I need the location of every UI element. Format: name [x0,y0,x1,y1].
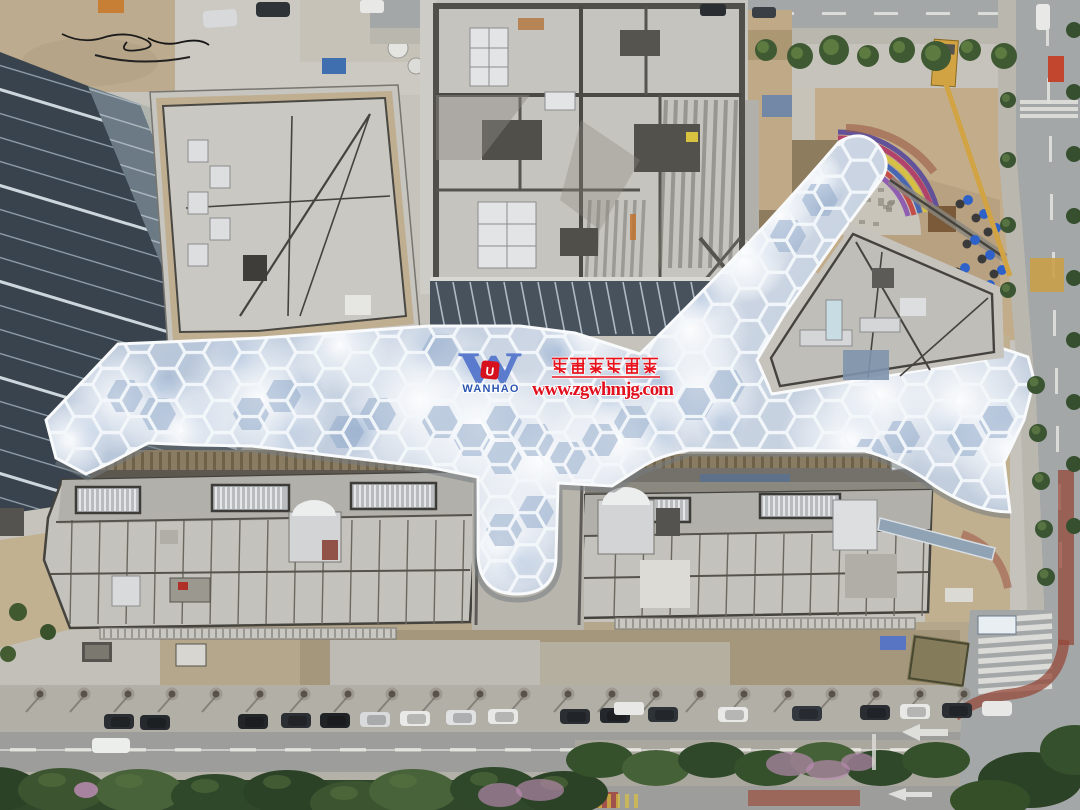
svg-text:WANHAO: WANHAO [462,383,519,395]
svg-text:www.zgwhmjg.com: www.zgwhmjg.com [532,379,674,400]
svg-text:U: U [485,364,495,379]
